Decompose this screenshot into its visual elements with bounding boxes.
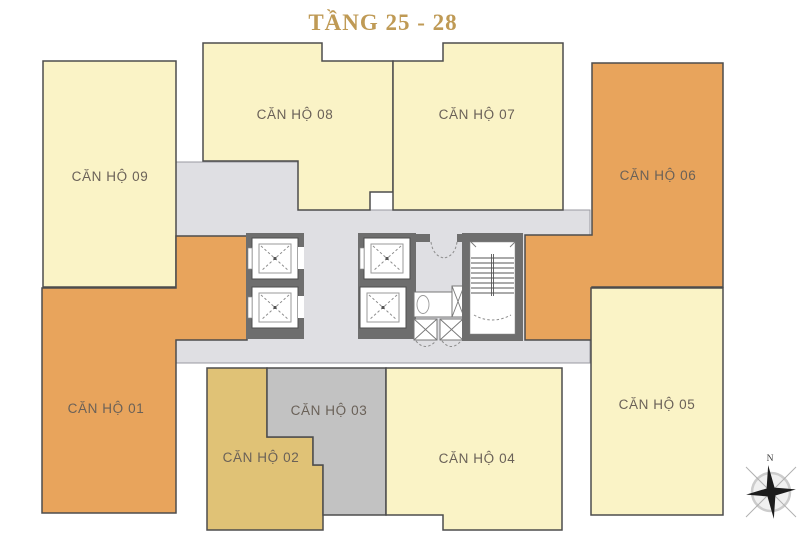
- floor-plan-page: TẦNG 25 - 28 CĂN HỘ 09 CĂN HỘ 08 CĂN HỘ …: [0, 0, 800, 539]
- elevator-door-tab: [248, 248, 252, 269]
- elevator-bank-1: [246, 233, 304, 339]
- floor-plan-canvas: TẦNG 25 - 28 CĂN HỘ 09 CĂN HỘ 08 CĂN HỘ …: [0, 0, 800, 539]
- apartment-label-can-ho-01: CĂN HỘ 01: [68, 401, 145, 416]
- elevator-car-icon: [248, 238, 304, 279]
- elevator-car-icon: [360, 238, 410, 279]
- elevator-center-dot: [386, 257, 389, 260]
- apartment-shape-can-ho-04[interactable]: [386, 368, 562, 530]
- apartment-label-can-ho-03: CĂN HỘ 03: [291, 403, 368, 418]
- apartment-label-can-ho-06: CĂN HỘ 06: [620, 168, 697, 183]
- apartment-label-can-ho-07: CĂN HỘ 07: [439, 107, 516, 122]
- apartment-can-ho-04[interactable]: CĂN HỘ 04: [386, 368, 562, 530]
- apartment-label-can-ho-04: CĂN HỘ 04: [439, 451, 516, 466]
- elevator-center-dot: [382, 306, 385, 309]
- apartment-label-can-ho-09: CĂN HỘ 09: [72, 169, 149, 184]
- elevator-center-dot: [274, 257, 277, 260]
- elevator-door-notch: [298, 247, 304, 269]
- apartment-label-can-ho-02: CĂN HỘ 02: [223, 450, 300, 465]
- apartment-can-ho-09[interactable]: CĂN HỘ 09: [43, 61, 176, 287]
- door-wall-segment: [416, 234, 430, 242]
- elevator-door-tab: [248, 297, 252, 318]
- apartment-label-can-ho-08: CĂN HỘ 08: [257, 107, 334, 122]
- apartment-can-ho-05[interactable]: CĂN HỘ 05: [591, 288, 723, 515]
- elevator-bank-2: [358, 233, 416, 339]
- elevator-car-icon: [360, 287, 406, 328]
- elevator-center-dot: [274, 306, 277, 309]
- compass-north-label: N: [767, 454, 774, 464]
- page-title: TẦNG 25 - 28: [308, 9, 457, 35]
- apartment-can-ho-07[interactable]: CĂN HỘ 07: [393, 43, 563, 210]
- apartment-label-can-ho-05: CĂN HỘ 05: [619, 397, 696, 412]
- apartment-shape-can-ho-07[interactable]: [393, 43, 563, 210]
- elevator-door-tab: [360, 248, 364, 269]
- elevator-door-notch: [298, 296, 304, 318]
- stairwell: [462, 233, 523, 341]
- elevator-car-icon: [248, 287, 304, 328]
- service-room: [414, 292, 452, 317]
